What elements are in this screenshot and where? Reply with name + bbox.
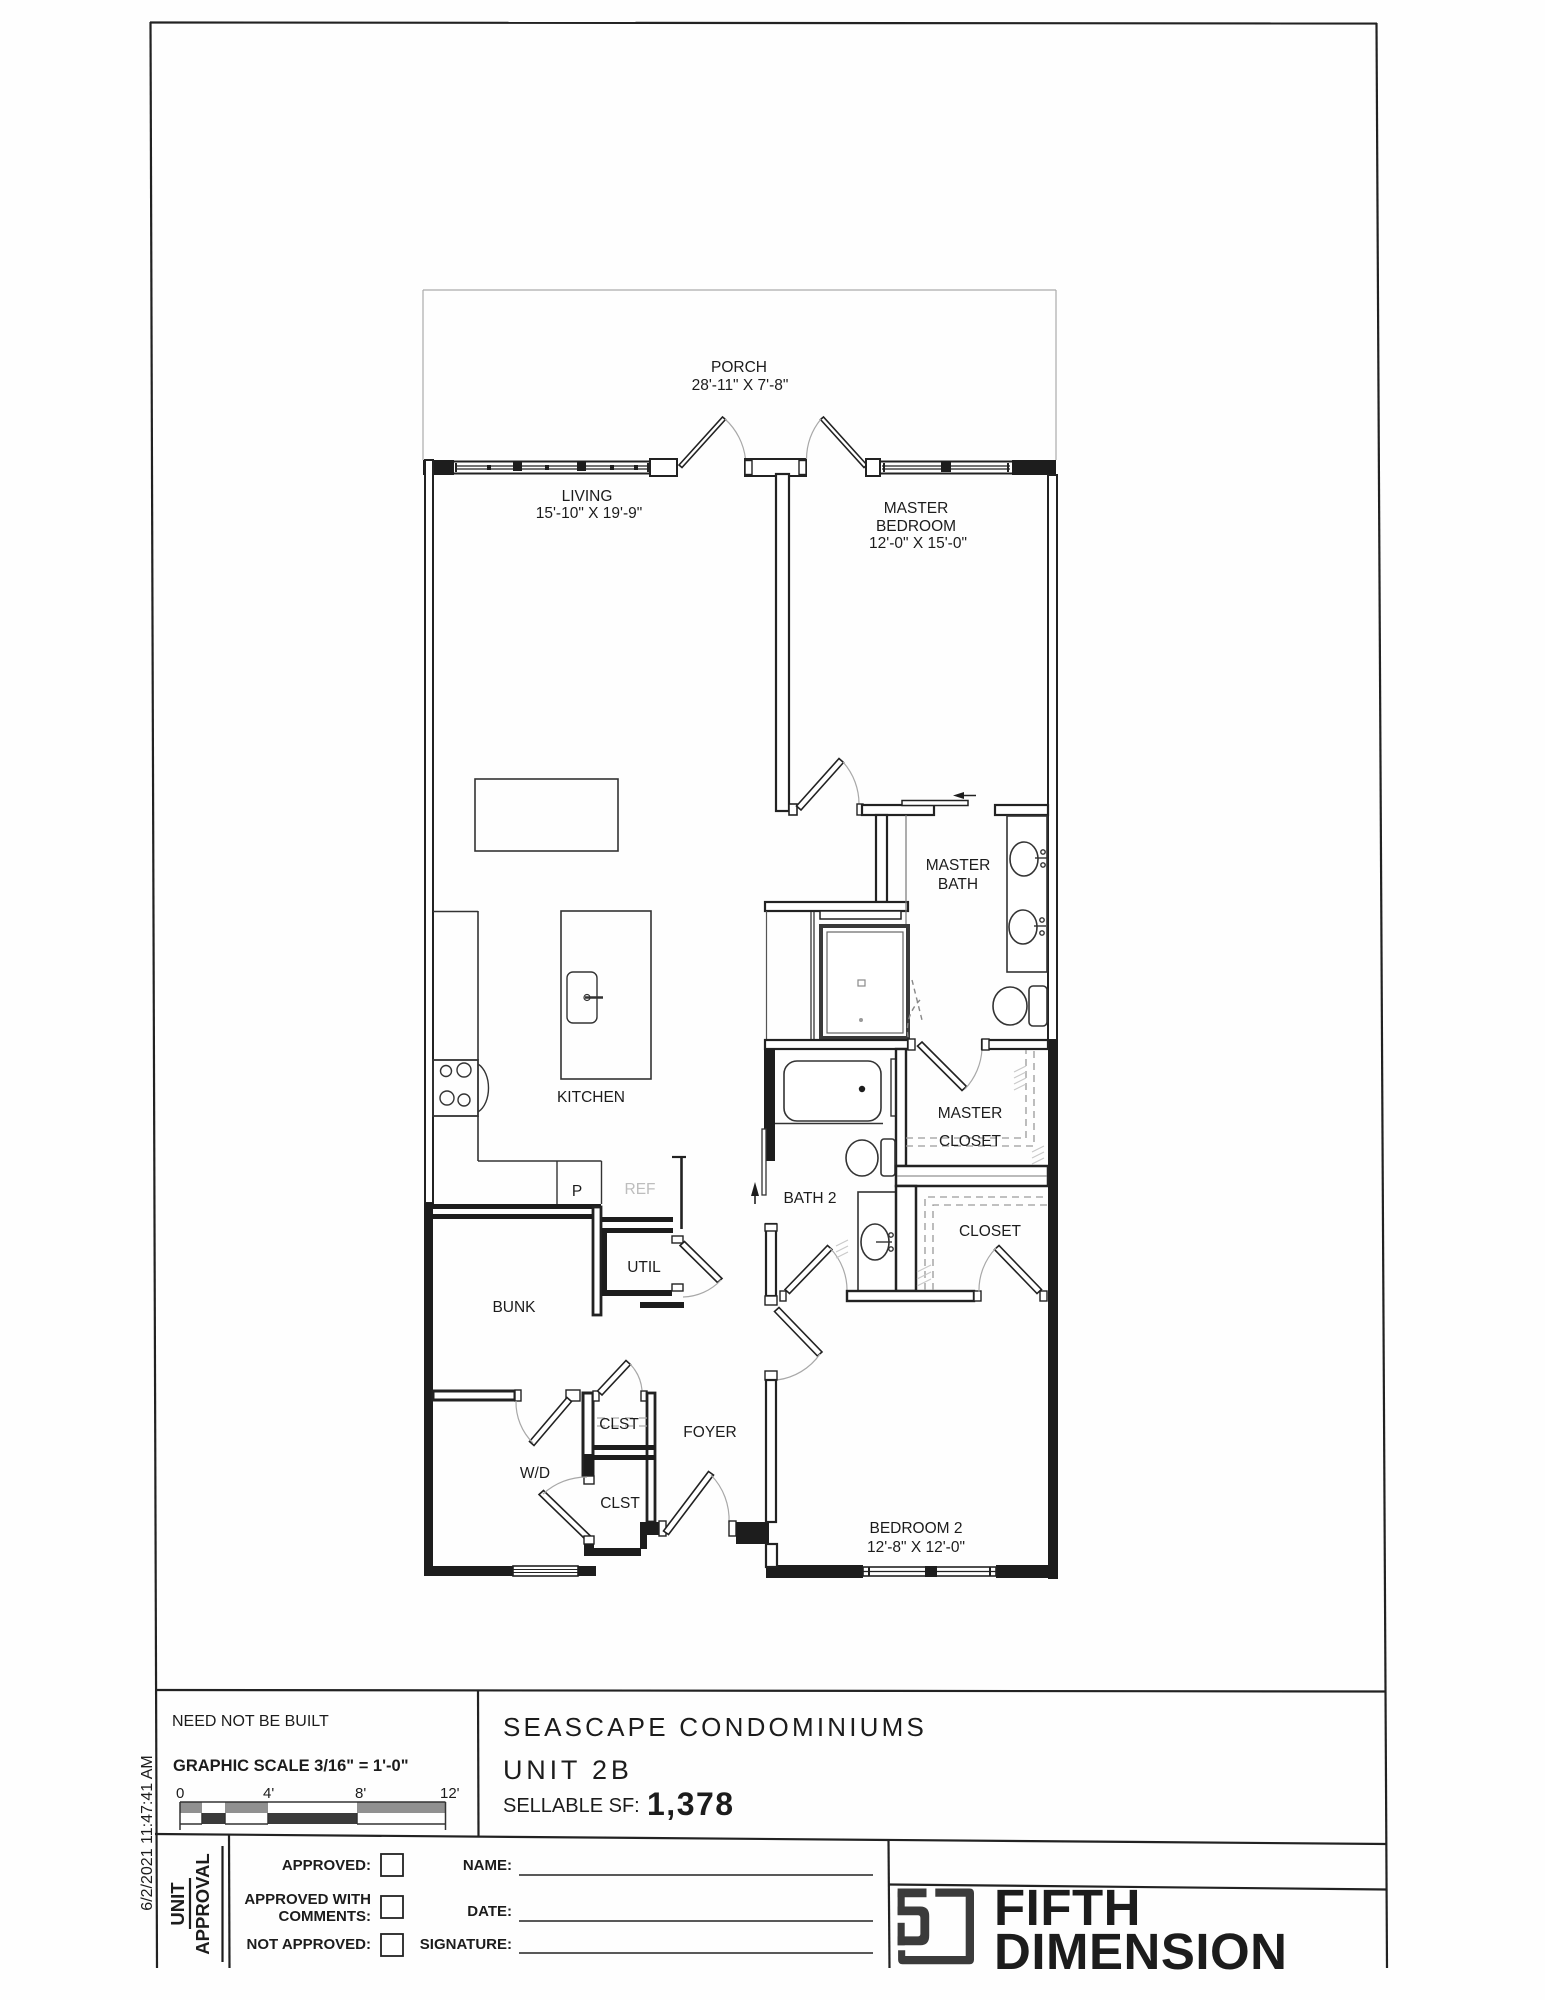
svg-text:APPROVAL: APPROVAL bbox=[192, 1853, 213, 1954]
svg-text:NOT APPROVED:: NOT APPROVED: bbox=[247, 1936, 371, 1953]
svg-text:BATH 2: BATH 2 bbox=[783, 1190, 836, 1207]
svg-text:CLOSET: CLOSET bbox=[939, 1133, 1002, 1150]
svg-text:BATH: BATH bbox=[938, 876, 978, 893]
svg-text:W/D: W/D bbox=[520, 1465, 550, 1482]
svg-text:SIGNATURE:: SIGNATURE: bbox=[420, 1936, 512, 1953]
svg-text:COMMENTS:: COMMENTS: bbox=[279, 1908, 372, 1925]
svg-text:KITCHEN: KITCHEN bbox=[557, 1089, 625, 1106]
svg-text:P: P bbox=[572, 1183, 582, 1200]
svg-text:8': 8' bbox=[355, 1785, 366, 1802]
svg-text:MASTER: MASTER bbox=[884, 500, 949, 517]
svg-text:12'-0" X 15'-0": 12'-0" X 15'-0" bbox=[869, 535, 967, 552]
svg-text:UTIL: UTIL bbox=[627, 1259, 661, 1276]
svg-text:FOYER: FOYER bbox=[683, 1424, 736, 1441]
svg-text:BEDROOM: BEDROOM bbox=[876, 518, 956, 535]
svg-text:MASTER: MASTER bbox=[926, 857, 991, 874]
svg-text:6/2/2021 11:47:41 AM: 6/2/2021 11:47:41 AM bbox=[139, 1755, 156, 1910]
svg-text:CLST: CLST bbox=[600, 1495, 640, 1512]
svg-text:SELLABLE SF:: SELLABLE SF: bbox=[503, 1795, 640, 1817]
svg-text:DIMENSION: DIMENSION bbox=[994, 1923, 1288, 1980]
svg-text:NAME:: NAME: bbox=[463, 1857, 512, 1874]
svg-text:REF: REF bbox=[625, 1181, 656, 1198]
svg-text:UNIT: UNIT bbox=[167, 1882, 188, 1926]
svg-text:1,378: 1,378 bbox=[647, 1786, 735, 1822]
svg-text:PORCH: PORCH bbox=[711, 359, 767, 376]
svg-text:BUNK: BUNK bbox=[492, 1299, 536, 1316]
svg-text:SEASCAPE CONDOMINIUMS: SEASCAPE CONDOMINIUMS bbox=[503, 1712, 927, 1742]
svg-text:28'-11" X 7'-8": 28'-11" X 7'-8" bbox=[692, 377, 789, 394]
svg-text:BEDROOM 2: BEDROOM 2 bbox=[869, 1520, 962, 1537]
svg-text:MASTER: MASTER bbox=[938, 1105, 1003, 1122]
svg-text:APPROVED:: APPROVED: bbox=[282, 1857, 371, 1874]
svg-text:12': 12' bbox=[440, 1785, 460, 1802]
svg-text:APPROVED WITH: APPROVED WITH bbox=[244, 1891, 371, 1908]
svg-text:CLOSET: CLOSET bbox=[959, 1223, 1022, 1240]
svg-text:0: 0 bbox=[176, 1785, 184, 1802]
svg-text:CLST: CLST bbox=[599, 1416, 639, 1433]
svg-text:LIVING: LIVING bbox=[562, 488, 613, 505]
svg-text:4': 4' bbox=[263, 1785, 274, 1802]
svg-text:DATE:: DATE: bbox=[467, 1903, 512, 1920]
svg-text:12'-8" X 12'-0": 12'-8" X 12'-0" bbox=[867, 1539, 965, 1556]
svg-text:NEED NOT BE BUILT: NEED NOT BE BUILT bbox=[172, 1713, 329, 1730]
svg-text:UNIT 2B: UNIT 2B bbox=[503, 1755, 633, 1785]
svg-text:GRAPHIC SCALE 3/16" = 1'-0": GRAPHIC SCALE 3/16" = 1'-0" bbox=[173, 1757, 409, 1775]
svg-text:15'-10" X 19'-9": 15'-10" X 19'-9" bbox=[536, 505, 643, 522]
